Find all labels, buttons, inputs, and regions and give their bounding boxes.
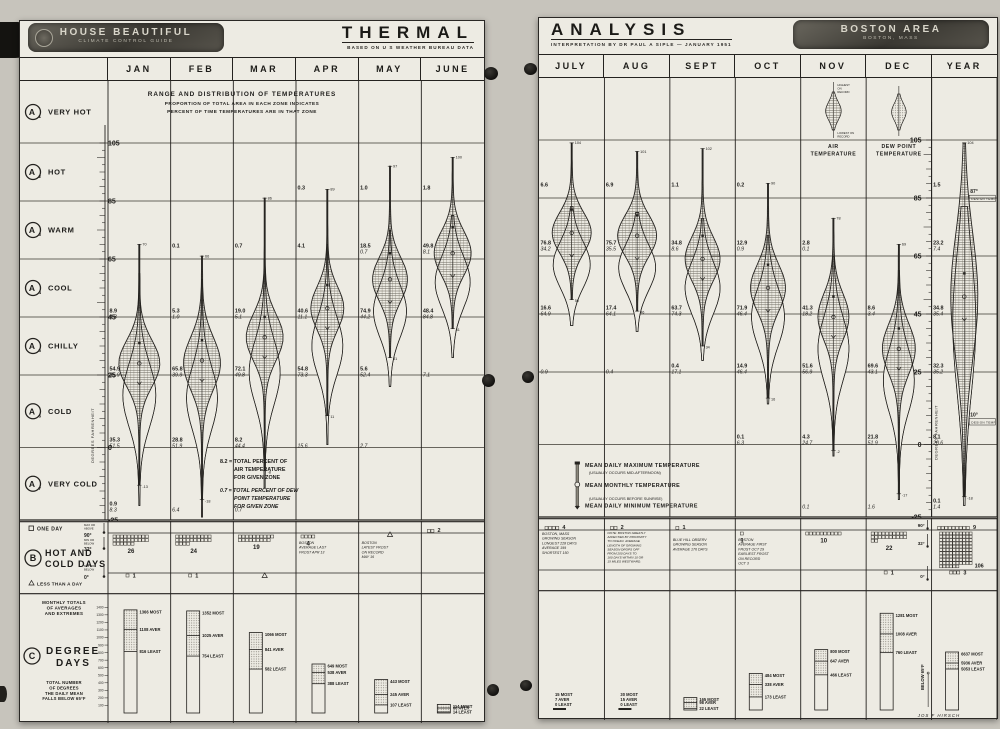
below-65-label: BELOW 65°F: [920, 664, 925, 690]
chart-intro-text: RANGE AND DISTRIBUTION OF TEMPERATURESPR…: [148, 91, 337, 114]
pct-air-warm: 0.7: [235, 243, 243, 249]
pct-dew-cool: 35.4: [933, 312, 943, 318]
days-above-90: 9: [973, 525, 976, 531]
svg-text:B: B: [30, 553, 37, 563]
pct-air-hot: 6.9: [606, 182, 614, 188]
svg-text:400: 400: [98, 681, 104, 685]
degree-days-bar-oct: 484 MOST338 AVER173 LEAST: [749, 673, 786, 710]
pct-dew-warm: 35.5: [606, 246, 616, 252]
svg-text:C: C: [29, 651, 36, 661]
degree-days-bar-may: 443 MOST245 AVER107 LEAST: [375, 679, 412, 713]
degree-days-bar-year: 6637 MOST5936 AVER5053 LEAST: [946, 652, 986, 711]
aver-label: 841 AVER: [265, 647, 284, 652]
aver-label: 1108 AVER: [140, 627, 161, 632]
note-line: AVERAGE FIRST: [737, 543, 767, 547]
scan-artifact-edge: [0, 686, 7, 702]
record-high: 104: [967, 141, 973, 145]
pct-dew-chilly: 39.9: [172, 373, 182, 379]
least-label: 14 LEAST: [453, 709, 473, 714]
scale-tick-85: 85: [108, 198, 116, 205]
zone-label-chilly: A5CHILLY: [26, 339, 79, 354]
svg-text:3: 3: [39, 232, 42, 237]
days-below-0: 1: [891, 571, 894, 577]
violin-sept: 102341.134.88.663.774.30.417.1: [671, 147, 720, 376]
svg-text:1: 1: [39, 114, 42, 119]
note-line: 15 MILES WESTWARD.: [607, 560, 641, 564]
right-page: ANALYSIS INTERPRETATION BY DR PAUL A SIP…: [538, 17, 998, 719]
pct-air-hot: 0.3: [298, 185, 306, 191]
svg-text:ABOVE: ABOVE: [84, 526, 94, 530]
pct-dew-cool: 64.1: [606, 312, 616, 318]
scale-tick-105: 105: [108, 140, 120, 147]
pct-dew-cool: 74.3: [671, 312, 681, 318]
svg-text:(USUALLY OCCURS BEFORE SUNRISE: (USUALLY OCCURS BEFORE SUNRISE): [589, 496, 663, 501]
most-label: 1352 MOST: [202, 610, 225, 615]
record-low: 46: [640, 311, 644, 315]
month-header-year: YEAR: [932, 55, 997, 77]
least-label: 466 LEAST: [830, 672, 852, 677]
record-high: 102: [706, 147, 712, 151]
most-label: 484 MOST: [765, 673, 785, 678]
svg-text:WARM: WARM: [48, 226, 75, 235]
most-label: 1281 MOST: [896, 613, 919, 618]
pct-dew-cool: 64.9: [541, 312, 551, 318]
scale-tick-65: 65: [914, 253, 922, 260]
days-below-32: 24: [190, 549, 197, 555]
pct-dew-chilly: 0.9: [541, 370, 548, 376]
svg-text:BELOW: BELOW: [84, 567, 94, 571]
note-line: ON RECORD: [362, 550, 384, 554]
days-above-90: 1: [682, 525, 685, 531]
note-line: SHORTEST 150: [542, 551, 569, 555]
aver-label: 538 AVER: [328, 670, 347, 675]
scale-tick-0: 0: [918, 442, 922, 449]
hot-cold-july: 4BOSTON, MASSGROWING SEASONLONGEST 228 D…: [541, 525, 577, 555]
note-line: AVERAGE LAST: [298, 546, 327, 550]
svg-text:A: A: [29, 283, 35, 293]
pct-dew-warm: 34.2: [541, 246, 551, 252]
svg-text:DAYS: DAYS: [56, 658, 91, 669]
month-header-jan: JAN: [108, 58, 171, 80]
pct-dew-chilly: 46.4: [737, 370, 747, 376]
pct-dew-very_cold: 1.6: [868, 505, 875, 511]
svg-text:600: 600: [98, 666, 104, 670]
zone-label-very-cold: A7VERY COLD: [26, 476, 98, 491]
days-below-0: 1: [133, 574, 136, 580]
svg-text:MONTHLY TOTALS: MONTHLY TOTALS: [42, 600, 86, 605]
svg-text:32°: 32°: [918, 541, 925, 546]
pct-dew-very_cold: 1.4: [933, 505, 940, 511]
pct-dew-cool: 44.2: [360, 315, 370, 321]
hot-cold-aug: 2NOTE: BOSTON GREATLYAFFECTED BY PROXIMI…: [606, 525, 647, 564]
svg-text:1300: 1300: [96, 613, 103, 617]
record-high: 101: [640, 150, 646, 154]
note-line: EARLIEST FROST: [738, 552, 769, 556]
month-header-row-right: JULYAUGSEPTOCTNOVDECYEAR: [539, 55, 997, 78]
pct-dew-chilly: 73.3: [298, 373, 308, 379]
month-header-apr: APR: [296, 58, 359, 80]
aver-label: 647 AVER: [830, 659, 849, 664]
svg-text:10°: 10°: [970, 413, 978, 419]
pct-dew-cool: 4.3: [110, 315, 117, 321]
analysis-title-block: ANALYSIS INTERPRETATION BY DR PAUL A SIP…: [551, 21, 732, 47]
svg-text:PERCENT OF TIME TEMPERATURES A: PERCENT OF TIME TEMPERATURES ARE IN THAT…: [167, 109, 317, 114]
svg-text:COLD DAYS: COLD DAYS: [45, 559, 106, 569]
pct-dew-very_cold: 8.3: [110, 508, 117, 514]
scale-tick-65: 65: [108, 256, 116, 263]
svg-text:8.2 = TOTAL PERCENT OF: 8.2 = TOTAL PERCENT OF: [220, 459, 288, 465]
pct-dew-chilly: 17.1: [671, 370, 681, 376]
pct-dew-chilly: 52.4: [360, 373, 370, 379]
month-header-oct: OCT: [735, 55, 800, 77]
svg-text:FOR GIVEN ZONE: FOR GIVEN ZONE: [234, 504, 279, 510]
signature: JOS F HIRSCH: [917, 713, 960, 718]
zone-label-cold: A6COLD: [26, 404, 73, 419]
globe-icon: [35, 29, 53, 47]
hot-cold-axis: MAX ORABOVE90°MIN ORBELOW32°MIN ORBELOW0…: [84, 523, 105, 581]
pct-legend: 8.2 = TOTAL PERCENT OFAIR TEMPERATUREFOR…: [220, 459, 299, 510]
svg-text:0°: 0°: [84, 575, 89, 581]
most-label: 800 MOST: [830, 649, 850, 654]
note-line: LATEST FROST: [362, 546, 389, 550]
record-high: 100: [456, 156, 462, 160]
least-label: 0 LEAST: [620, 702, 637, 707]
least-label: 0 LEAST: [555, 702, 572, 707]
days-below-32: 106: [975, 563, 984, 569]
pct-dew-cool: 46.4: [737, 312, 747, 318]
pct-dew-chilly: 35.2: [933, 370, 943, 376]
note-line: GROWING SEASON: [542, 537, 576, 541]
aver-label: 5936 AVER: [961, 661, 982, 666]
degree-days-bar-june: 114 MOST66 AVER14 LEAST: [437, 704, 473, 715]
pct-air-warm: 4.1: [298, 243, 306, 249]
violin-may: 97311.018.50.774.944.25.652.42.7: [359, 164, 407, 449]
punch-hole: [520, 680, 532, 691]
zone-label-cool: A4COOL: [26, 281, 73, 296]
record-high: 90: [771, 182, 775, 186]
pct-dew-cold: 2.7: [359, 444, 368, 450]
hot-cold-oct: 1BOSTONAVERAGE FIRSTFROST OCT 29EARLIEST…: [737, 532, 769, 566]
hot-cold-days-strip-right: 4BOSTON, MASSGROWING SEASONLONGEST 228 D…: [539, 518, 997, 590]
pct-dew-cool: 11.1: [298, 315, 308, 321]
page-title-source: BASED ON U S WEATHER BUREAU DATA: [342, 42, 474, 50]
least-label: 173 LEAST: [765, 694, 787, 699]
least-label: 754 LEAST: [202, 654, 224, 659]
hot-cold-mar: 19: [238, 535, 273, 578]
svg-text:FOR GIVEN ZONE: FOR GIVEN ZONE: [234, 475, 281, 481]
svg-text:0°: 0°: [920, 574, 925, 579]
least-label: 107 LEAST: [390, 702, 412, 707]
pct-dew-cool: 5.1: [235, 315, 242, 321]
violin-mar: 86-80.719.05.172.149.88.244.40.7: [235, 196, 283, 513]
record-low: -17: [902, 493, 908, 497]
scale-tick--25: -25: [108, 517, 118, 521]
svg-text:AND EXTREMES: AND EXTREMES: [45, 611, 84, 616]
pct-dew-cold: 6.3: [737, 441, 744, 447]
pct-dew-cool: 1.0: [172, 315, 179, 321]
month-header-dec: DEC: [866, 55, 931, 77]
svg-text:COLD: COLD: [48, 407, 72, 416]
violin-june: 100411.849.88.148.484.87.1: [423, 156, 471, 379]
record-high: 86: [268, 196, 272, 200]
pct-air-hot: 1.5: [933, 182, 941, 188]
note-line: AVERAGE 176 DAYS: [672, 547, 708, 551]
month-header-sept: SEPT: [670, 55, 735, 77]
svg-text:PROPORTION OF TOTAL AREA IN EA: PROPORTION OF TOTAL AREA IN EACH ZONE IN…: [165, 101, 320, 106]
degree-days-bar-apr: 649 MOST538 AVER388 LEAST: [312, 664, 349, 713]
record-high: 78: [836, 217, 840, 221]
badge-subtitle: CLIMATE CONTROL GUIDE: [28, 39, 224, 44]
badge-title: BOSTON AREA: [793, 24, 989, 35]
violin-feb: 66-180.15.31.065.839.928.851.96.4: [172, 243, 220, 517]
svg-text:DESIGN TEMP: DESIGN TEMP: [971, 421, 996, 425]
hot-cold-nov: 10: [806, 532, 841, 545]
svg-text:A: A: [29, 167, 35, 177]
month-header-aug: AUG: [604, 55, 669, 77]
most-label: 1066 MOST: [265, 632, 288, 637]
month-header-mar: MAR: [233, 58, 296, 80]
page-title-credit: INTERPRETATION BY DR PAUL A SIPLE — JANU…: [551, 39, 732, 47]
svg-text:4: 4: [39, 290, 42, 295]
degree-days-bar-aug: 30 MOST15 AVER0 LEAST: [618, 692, 638, 710]
scale-tick--25: -25: [911, 514, 921, 518]
page-title: THERMAL: [342, 24, 474, 41]
pct-air-hot: 1.0: [360, 185, 368, 191]
zone-label-very-hot: A1VERY HOT: [26, 105, 92, 120]
svg-text:1100: 1100: [97, 628, 104, 632]
scale-axis-label: DEGREES FAHRENHEIT: [90, 408, 95, 463]
pct-air-hot: 1.1: [671, 182, 679, 188]
aver-label: 338 AVER: [765, 682, 784, 687]
note-line: BOSTON, MASS: [542, 532, 570, 536]
record-low: 41: [456, 328, 460, 332]
svg-text:100: 100: [98, 704, 104, 708]
pct-dew-cool: 84.8: [423, 315, 433, 321]
svg-text:TOTAL NUMBER: TOTAL NUMBER: [46, 680, 81, 685]
pct-dew-cold: 15.6: [298, 444, 308, 450]
violin-apr: 89110.34.140.611.154.873.315.6: [298, 185, 344, 449]
violin-oct: 90160.212.90.971.946.414.946.40.16.3: [737, 182, 786, 447]
pct-dew-chilly: 49.8: [235, 373, 245, 379]
badge-title: HOUSE BEAUTIFUL: [28, 27, 224, 38]
svg-text:TEMPERATURE: TEMPERATURE: [876, 152, 922, 158]
days-below-32: 19: [253, 545, 260, 551]
punch-hole: [487, 684, 499, 696]
pct-dew-warm: 8.1: [423, 249, 430, 255]
record-low: 16: [771, 398, 775, 402]
days-below-0: 1: [195, 574, 198, 580]
left-page-header: HOUSE BEAUTIFUL CLIMATE CONTROL GUIDE TH…: [20, 21, 484, 58]
month-header-may: MAY: [359, 58, 422, 80]
month-header-june: JUNE: [421, 58, 484, 80]
highest-on-record-label: RECORD: [837, 90, 849, 94]
record-low: 11: [330, 415, 334, 419]
svg-text:VERY HOT: VERY HOT: [48, 108, 92, 117]
design-temp-annotation: 10°DESIGN TEMP: [969, 413, 996, 426]
zone-label-hot: A2HOT: [26, 165, 66, 180]
pct-dew-warm: 0.1: [802, 246, 809, 252]
degree-days-label: MONTHLY TOTALSOF AVERAGESAND EXTREMESCDE…: [24, 600, 100, 701]
lowest-on-record-label: RECORD: [837, 134, 849, 138]
most-label: 6637 MOST: [961, 652, 984, 657]
svg-text:1000: 1000: [96, 636, 103, 640]
note-line: BOSTON: [362, 541, 378, 545]
svg-text:BELOW: BELOW: [84, 541, 94, 545]
left-page: HOUSE BEAUTIFUL CLIMATE CONTROL GUIDE TH…: [19, 20, 485, 722]
days-below-32: 10: [820, 539, 827, 545]
svg-text:DEW POINT: DEW POINT: [881, 144, 916, 150]
note-line: BOSTON: [299, 541, 315, 545]
punch-hole: [522, 371, 534, 383]
house-beautiful-badge: HOUSE BEAUTIFUL CLIMATE CONTROL GUIDE: [28, 23, 224, 52]
page-title: ANALYSIS: [551, 21, 732, 38]
svg-text:90°: 90°: [918, 523, 925, 528]
degree-days-bar-jan: 1366 MOST1108 AVER816 LEAST: [124, 609, 162, 713]
note-line: FROST APR 13: [299, 550, 324, 554]
pct-dew-cold: 51.9: [172, 444, 182, 450]
svg-text:FALLS BELOW 65°F: FALLS BELOW 65°F: [42, 696, 86, 701]
record-high: 70: [142, 243, 146, 247]
svg-text:CHILLY: CHILLY: [48, 342, 79, 351]
hot-cold-days-label: ONE DAYBHOT ANDCOLD DAYSLESS THAN A DAY: [25, 526, 106, 587]
scanned-document: { "document": { "left_page": { "badge": …: [0, 0, 1000, 729]
pct-dew-chilly: 7.1: [423, 373, 430, 379]
pct-dew-warm: 8.6: [671, 246, 678, 252]
most-label: 1366 MOST: [140, 609, 163, 614]
violin-aug: 101466.975.735.517.464.10.4: [606, 150, 657, 376]
pct-dew-cold: 20.6: [932, 441, 943, 447]
note-line: AVERAGE 199: [541, 546, 566, 550]
svg-text:OF AVERAGES: OF AVERAGES: [47, 606, 82, 611]
pct-dew-warm: 0.9: [737, 246, 744, 252]
svg-text:AIR TEMPERATURE: AIR TEMPERATURE: [234, 467, 286, 473]
pct-air-hot: 0.2: [737, 182, 745, 188]
pct-air-hot: 1.8: [423, 185, 431, 191]
right-page-header: ANALYSIS INTERPRETATION BY DR PAUL A SIP…: [539, 18, 997, 55]
least-label: 582 LEAST: [265, 667, 287, 672]
scale-tick-25: 25: [914, 369, 922, 376]
svg-text:COOL: COOL: [48, 284, 72, 293]
record-low: -2: [836, 450, 839, 454]
note-line: LONGEST 228 DAYS: [542, 541, 577, 545]
record-high: 69: [902, 243, 906, 247]
month-header-feb: FEB: [171, 58, 234, 80]
svg-text:MEAN DAILY MINIMUM TEMPERATURE: MEAN DAILY MINIMUM TEMPERATURE: [585, 504, 698, 510]
temperature-distribution-chart-right: 105856545250-25DEGREES FAHRENHEIT104506.…: [539, 78, 997, 518]
degree-days-bar-sept: 165 MOST98 AVER22 LEAST: [684, 697, 720, 711]
record-low: 31: [393, 357, 397, 361]
violin-jan: 70-138.94.354.935.935.351.50.98.3: [110, 243, 160, 514]
hot-cold-sept: 1BLUE HILL OBSERVGROWING SEASONAVERAGE 1…: [672, 525, 708, 551]
pct-dew-cool: 3.4: [868, 312, 875, 318]
scale-tick-45: 45: [914, 311, 922, 318]
svg-text:OF DEGREES: OF DEGREES: [49, 685, 78, 690]
note-line: BLUE HILL OBSERV: [673, 538, 707, 542]
svg-text:A: A: [29, 107, 35, 117]
svg-text:200: 200: [98, 696, 104, 700]
boston-area-badge: BOSTON AREA BOSTON, MASS: [793, 20, 989, 49]
svg-text:DESIGN TEMP: DESIGN TEMP: [971, 197, 996, 201]
record-low: -18: [967, 496, 973, 500]
pct-dew-chilly: 0.4: [606, 370, 613, 376]
hot-cold-dec: 22190°32°0°: [871, 520, 929, 581]
note-line: OCT 3: [738, 562, 749, 566]
svg-text:7: 7: [39, 486, 42, 491]
hot-cold-may: BOSTONLATEST FROSTON RECORDMAY 16: [362, 532, 393, 559]
thermal-title-block: THERMAL BASED ON U S WEATHER BUREAU DATA: [342, 24, 474, 50]
note-line: MAY 16: [362, 555, 374, 559]
pct-dew-chilly: 56.9: [802, 370, 812, 376]
svg-text:THE DAILY MEAN: THE DAILY MEAN: [45, 691, 83, 696]
note-line: GROWING SEASON: [673, 543, 707, 547]
svg-text:A: A: [29, 479, 35, 489]
degree-days-chart-right: 15 MOST7 AVER0 LEAST30 MOST15 AVER0 LEAS…: [539, 590, 997, 720]
pct-dew-cold: 24.7: [801, 441, 813, 447]
least-label: 5053 LEAST: [961, 667, 985, 672]
aver-label: 245 AVER: [390, 692, 409, 697]
record-high: 97: [393, 164, 397, 168]
punch-hole: [482, 374, 495, 387]
aver-label: 1008 AVER: [896, 631, 917, 636]
svg-text:A: A: [29, 406, 35, 416]
record-low: -18: [205, 499, 211, 503]
month-header-july: JULY: [539, 55, 604, 77]
svg-text:900: 900: [98, 643, 104, 647]
record-high: 66: [205, 254, 209, 258]
pct-dew-cold: 51.9: [868, 441, 878, 447]
hot-cold-year: 91063: [938, 525, 984, 577]
record-low: -13: [142, 485, 148, 489]
least-label: 22 LEAST: [699, 706, 719, 711]
svg-text:5: 5: [39, 348, 42, 353]
record-high: 104: [575, 141, 581, 145]
svg-text:(USUALLY OCCURS MID-AFTERNOON): (USUALLY OCCURS MID-AFTERNOON): [589, 470, 662, 475]
violin-dec: 69-178.63.469.643.121.851.91.6: [868, 243, 916, 511]
svg-text:HOT: HOT: [48, 168, 66, 177]
degree-days-bar-dec: 1281 MOST1008 AVER760 LEASTBELOW 65°F: [880, 613, 929, 710]
degree-days-bar-mar: 1066 MOST841 AVER582 LEAST: [249, 632, 287, 713]
pct-dew-chilly: 35.9: [110, 373, 120, 379]
days-below-32: 26: [128, 549, 135, 555]
svg-text:1200: 1200: [96, 621, 103, 625]
svg-text:32°: 32°: [84, 547, 92, 553]
degree-days-chart-left: MONTHLY TOTALSOF AVERAGESAND EXTREMESCDE…: [20, 593, 484, 723]
most-label: 649 MOST: [328, 664, 348, 669]
record-low: 34: [706, 346, 710, 350]
svg-text:MEAN DAILY MAXIMUM TEMPERATURE: MEAN DAILY MAXIMUM TEMPERATURE: [585, 463, 700, 469]
svg-text:700: 700: [98, 658, 104, 662]
svg-text:87°: 87°: [970, 189, 978, 195]
month-header-row-left: JANFEBMARAPRMAYJUNE: [20, 58, 484, 81]
punch-hole: [484, 67, 498, 80]
note-line: BOSTON: [738, 538, 754, 542]
violin-july: 104506.676.834.216.664.90.9: [541, 141, 592, 376]
pct-dew-chilly: 43.1: [868, 370, 878, 376]
pct-dew-cold: 44.4: [235, 444, 245, 450]
aver-label: 98 AVER: [699, 700, 716, 705]
hot-cold-apr: 4BOSTONAVERAGE LASTFROST APR 13: [298, 535, 327, 554]
svg-text:6: 6: [39, 413, 42, 418]
pct-dew-very_cold: 0.1: [802, 505, 809, 511]
mean-temperature-legend: MEAN DAILY MAXIMUM TEMPERATURE(USUALLY O…: [575, 462, 700, 510]
least-label: 388 LEAST: [328, 681, 350, 686]
punch-hole: [524, 63, 537, 75]
pct-dew-cool: 18.2: [802, 312, 812, 318]
svg-text:AIR: AIR: [828, 144, 839, 150]
note-line: FROST OCT 29: [738, 547, 764, 551]
svg-text:A: A: [29, 341, 35, 351]
pct-air-hot: 6.6: [541, 182, 549, 188]
